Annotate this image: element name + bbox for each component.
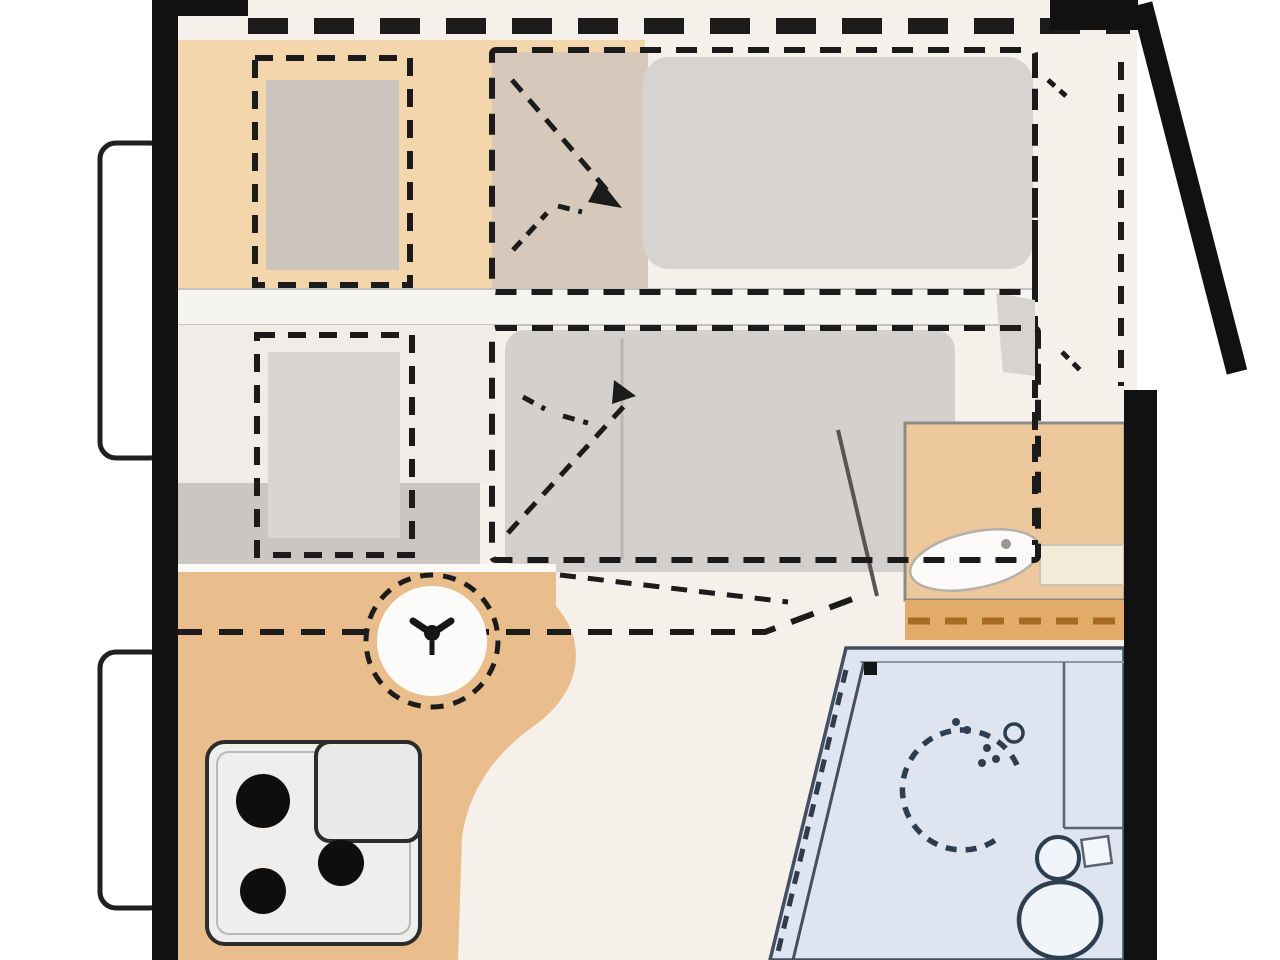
burner-top-left (236, 774, 290, 828)
right-wall (1124, 390, 1157, 960)
front-wall-stub (152, 0, 248, 16)
front-bed-mattress (643, 57, 1033, 269)
stove (207, 742, 420, 944)
cabinet-strip (905, 600, 1125, 640)
washbasin-faucet-dot (1001, 539, 1011, 549)
door-hinge-dot (864, 662, 877, 675)
dinette-table-front (266, 80, 399, 270)
burner-right (318, 840, 364, 886)
left-wall (152, 0, 178, 960)
kitchen-counter-edge (178, 564, 556, 572)
cabinet-shelf (1040, 545, 1124, 585)
stove-side-panel (316, 742, 420, 841)
dinette-table-middle (268, 352, 400, 538)
burner-bottom-left (240, 868, 286, 914)
right-front-wall-stub (1050, 0, 1138, 30)
toilet-flush-box (1081, 836, 1111, 866)
middle-bed-mattress (505, 330, 955, 572)
caravan-floorplan (0, 0, 1280, 960)
